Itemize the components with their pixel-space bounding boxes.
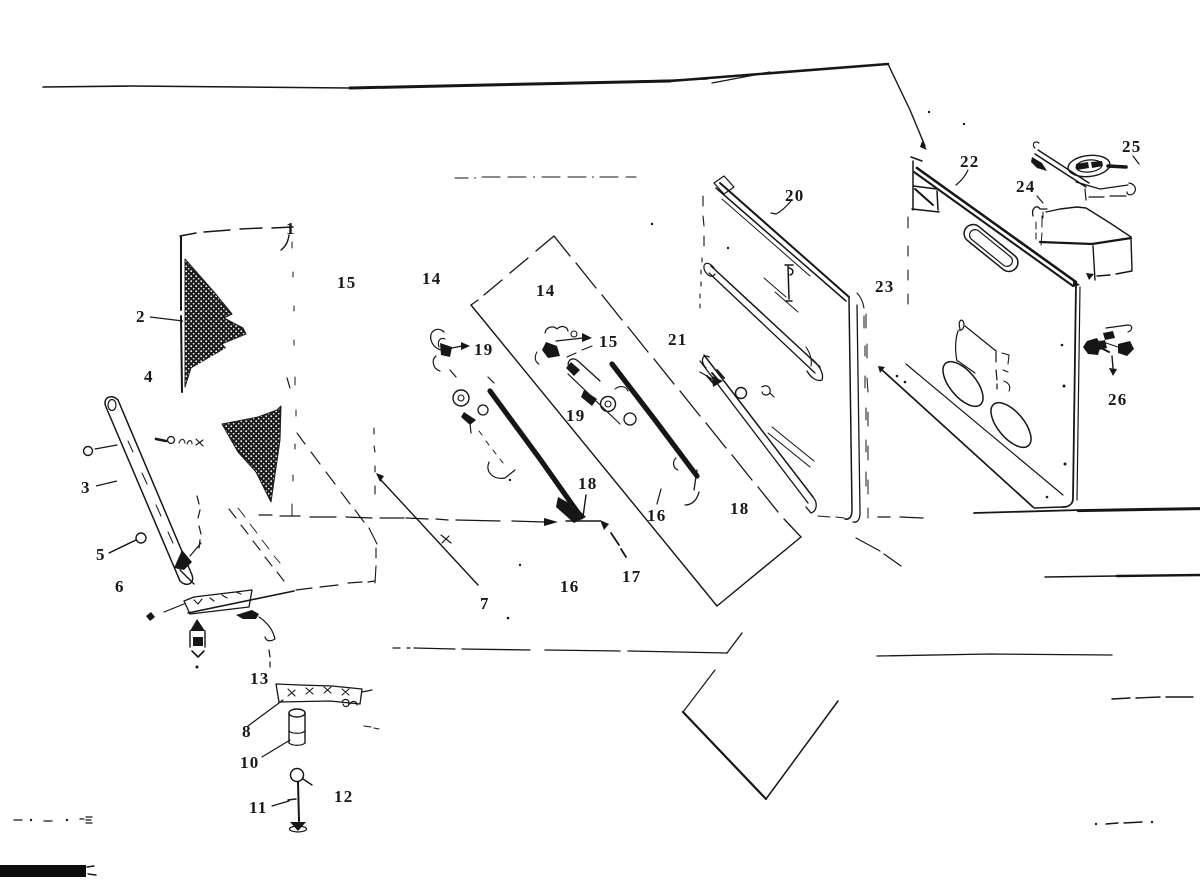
svg-text:16: 16: [560, 577, 579, 596]
svg-text:10: 10: [240, 753, 259, 772]
svg-text:18: 18: [730, 499, 749, 518]
svg-text:20: 20: [785, 186, 804, 205]
svg-text:25: 25: [1122, 137, 1141, 156]
svg-text:24: 24: [1016, 177, 1035, 196]
svg-text:1: 1: [286, 219, 296, 238]
svg-text:14: 14: [536, 281, 555, 300]
svg-text:15: 15: [337, 273, 356, 292]
svg-text:16: 16: [647, 506, 666, 525]
svg-text:19: 19: [566, 406, 585, 425]
svg-text:19: 19: [474, 340, 493, 359]
svg-text:11: 11: [249, 798, 267, 817]
svg-text:3: 3: [81, 478, 91, 497]
svg-text:17: 17: [622, 567, 641, 586]
svg-text:2: 2: [136, 307, 146, 326]
svg-text:22: 22: [960, 152, 979, 171]
svg-text:23: 23: [875, 277, 894, 296]
svg-text:21: 21: [668, 330, 687, 349]
svg-text:13: 13: [250, 669, 269, 688]
svg-text:18: 18: [578, 474, 597, 493]
svg-text:8: 8: [242, 722, 252, 741]
svg-text:15: 15: [599, 332, 618, 351]
svg-text:4: 4: [144, 367, 154, 386]
svg-text:5: 5: [96, 545, 106, 564]
svg-text:6: 6: [115, 577, 125, 596]
svg-text:7: 7: [480, 594, 490, 613]
svg-text:12: 12: [334, 787, 353, 806]
svg-text:26: 26: [1108, 390, 1127, 409]
svg-text:14: 14: [422, 269, 441, 288]
